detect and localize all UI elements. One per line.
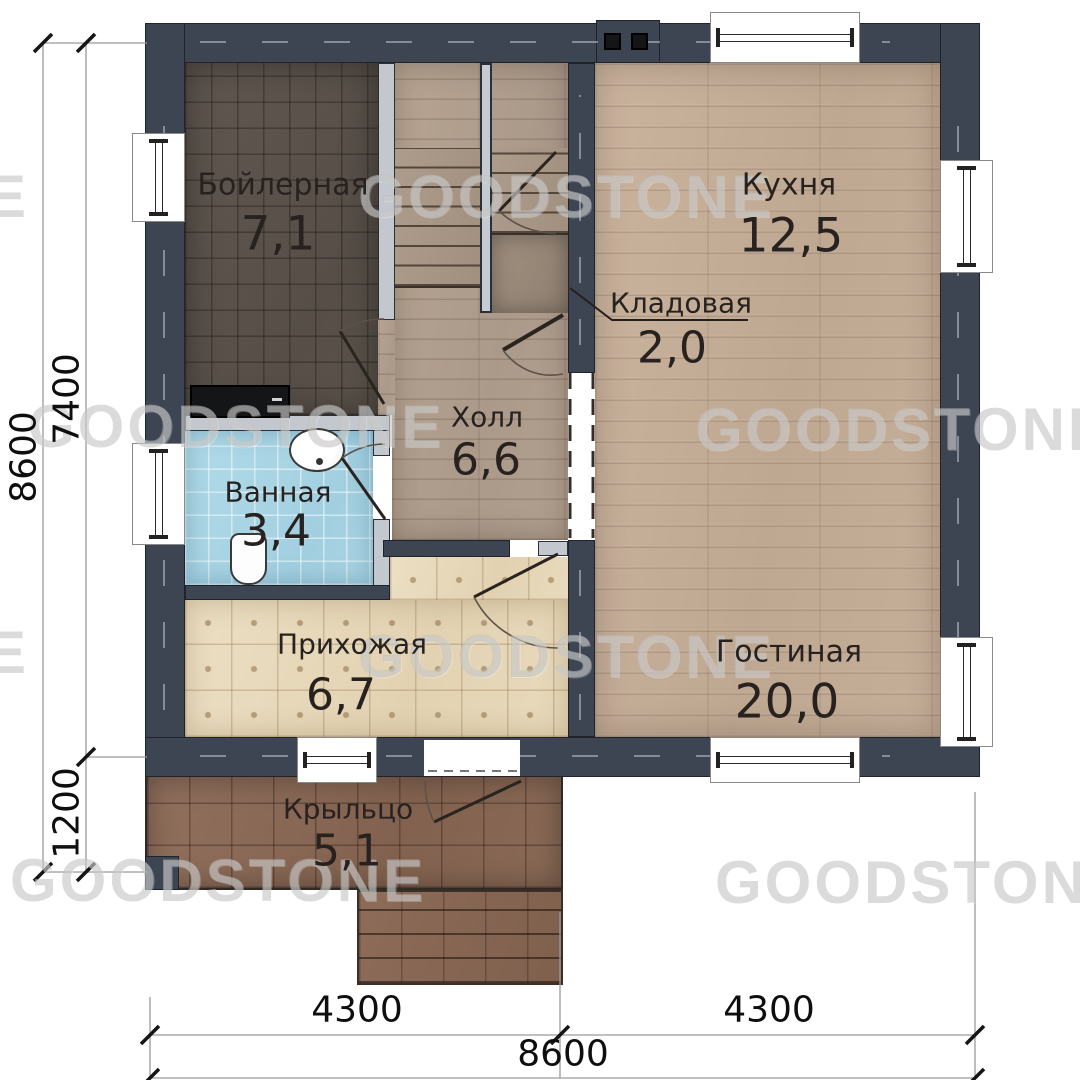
room-area-boiler: 7,1 <box>241 207 316 262</box>
watermark-partial-1: E <box>0 162 26 232</box>
window-kitchen-top <box>710 12 860 63</box>
watermark-partial-2: E <box>0 618 26 688</box>
watermark: GOODSTONE <box>358 162 774 231</box>
room-label-hall: Холл <box>451 401 523 434</box>
watermark: GOODSTONE <box>695 395 1080 464</box>
dim-left-lower: 1200 <box>47 767 88 859</box>
room-label-boiler: Бойлерная <box>197 168 368 203</box>
entry-hall-floor-upper <box>390 557 568 600</box>
window-living-bottom <box>710 737 860 783</box>
bathroom-wall-bottom <box>185 585 390 600</box>
window-kitchen-right <box>940 160 993 273</box>
room-area-entry: 6,7 <box>306 670 376 721</box>
chimney-flue-2 <box>631 33 648 50</box>
dim-bottom-b: 4300 <box>723 990 815 1031</box>
room-area-hall: 6,6 <box>451 435 521 486</box>
room-label-storage: Кладовая <box>610 287 752 320</box>
window-living-right <box>940 637 993 747</box>
room-label-bathroom: Ванная <box>225 476 332 509</box>
understair-storage-floor <box>492 235 568 313</box>
watermark: GOODSTONE <box>28 392 444 461</box>
room-label-kitchen: Кухня <box>742 168 836 203</box>
room-area-kitchen: 12,5 <box>739 209 844 264</box>
dim-left-total: 8600 <box>4 411 45 503</box>
room-area-storage: 2,0 <box>637 323 707 374</box>
hall-entry-partition <box>383 540 510 557</box>
dim-bottom-total: 8600 <box>517 1034 609 1075</box>
room-label-living: Гостиная <box>716 635 862 670</box>
room-area-porch: 5,1 <box>312 826 382 877</box>
room-label-porch: Крыльцо <box>283 793 413 826</box>
room-area-living: 20,0 <box>735 675 840 730</box>
room-area-bathroom: 3,4 <box>241 506 311 557</box>
dim-left-upper: 7400 <box>47 353 88 445</box>
entry-door-lintel <box>538 541 568 556</box>
room-label-entry: Прихожая <box>277 628 427 661</box>
front-door-opening <box>424 740 520 776</box>
open-passage-dashed <box>570 373 593 538</box>
chimney-flue-1 <box>604 33 621 50</box>
window-boiler-left <box>132 133 185 222</box>
watermark: GOODSTONE <box>715 848 1080 917</box>
dim-bottom-a: 4300 <box>311 990 403 1031</box>
window-entry-bottom <box>297 737 377 783</box>
